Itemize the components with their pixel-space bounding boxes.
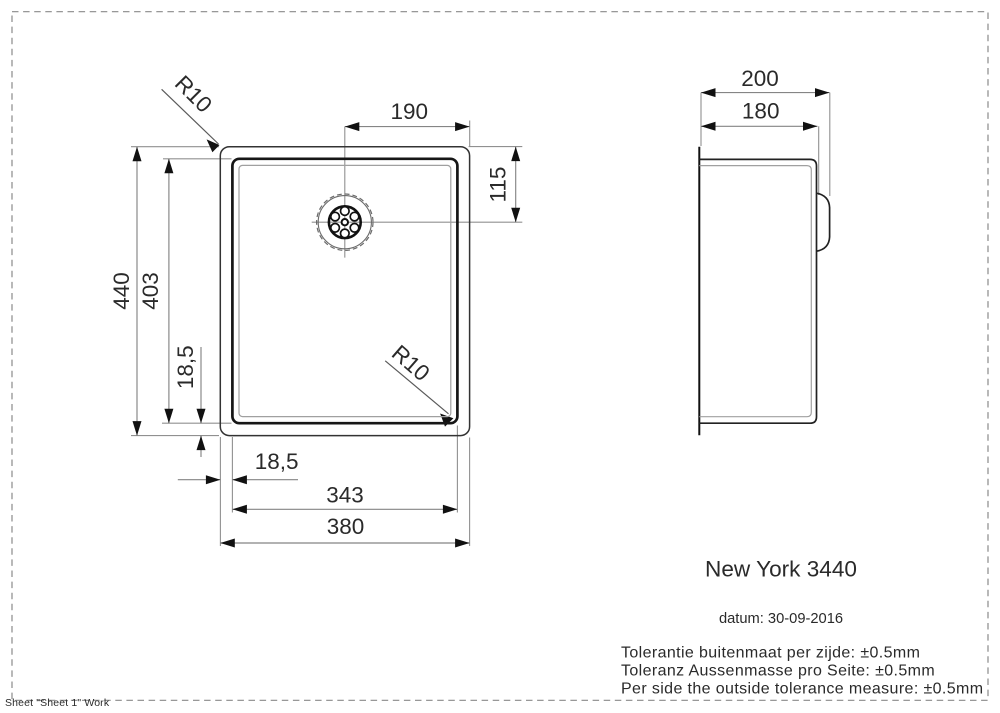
svg-text:440: 440 <box>109 272 134 310</box>
svg-text:403: 403 <box>138 272 163 310</box>
svg-text:Tolerantie buitenmaat per zijd: Tolerantie buitenmaat per zijde: ±0.5mm <box>621 645 920 662</box>
svg-text:18,5: 18,5 <box>255 449 299 474</box>
svg-text:18,5: 18,5 <box>173 345 198 389</box>
svg-text:343: 343 <box>326 483 364 508</box>
svg-text:180: 180 <box>742 99 780 124</box>
svg-text:datum: 30-09-2016: datum: 30-09-2016 <box>719 611 843 627</box>
svg-text:Sheet "Sheet 1" Work: Sheet "Sheet 1" Work <box>5 697 110 709</box>
svg-text:190: 190 <box>391 99 429 124</box>
svg-text:Per side the outside tolerance: Per side the outside tolerance measure: … <box>621 681 983 698</box>
svg-text:R10: R10 <box>387 340 435 386</box>
svg-text:New York 3440: New York 3440 <box>705 557 857 582</box>
svg-text:R10: R10 <box>170 71 217 118</box>
svg-text:200: 200 <box>741 66 779 91</box>
svg-text:115: 115 <box>485 167 510 203</box>
svg-text:380: 380 <box>327 514 365 539</box>
svg-text:Toleranz Aussenmasse pro Seite: Toleranz Aussenmasse pro Seite: ±0.5mm <box>621 663 935 680</box>
